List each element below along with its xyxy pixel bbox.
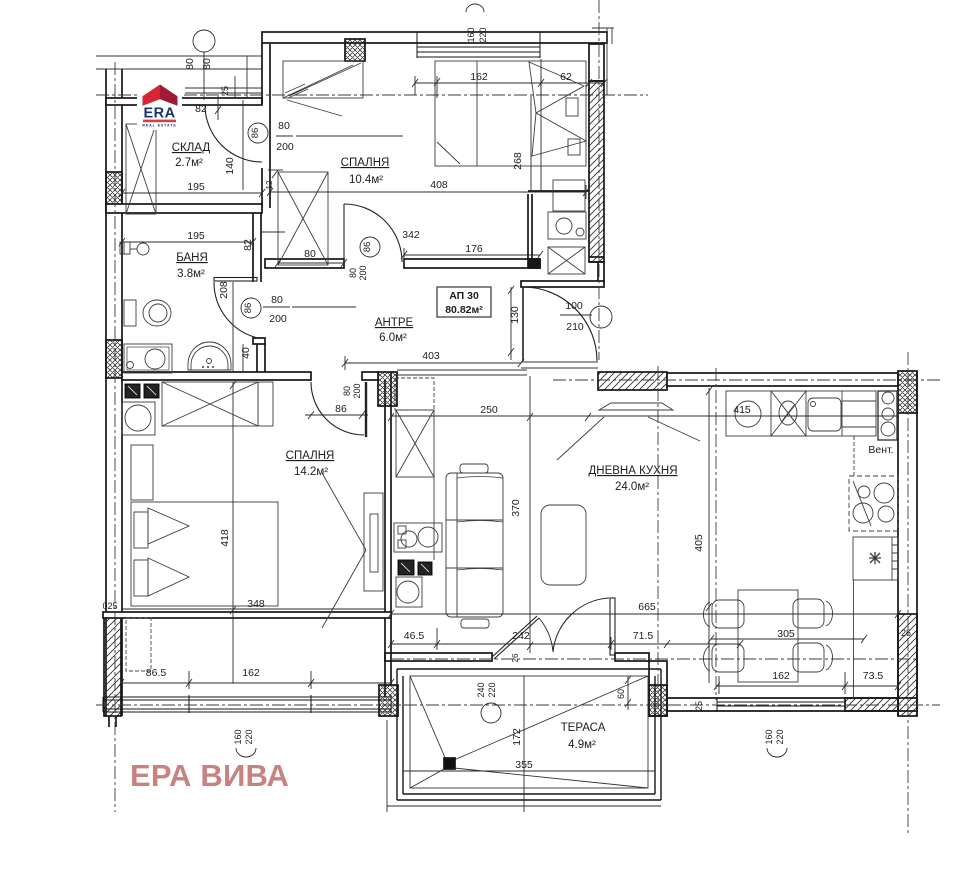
svg-text:25: 25 <box>694 701 704 711</box>
svg-text:АП 30: АП 30 <box>449 290 479 302</box>
svg-text:100: 100 <box>565 300 583 312</box>
svg-text:25: 25 <box>220 86 230 96</box>
svg-text:71.5: 71.5 <box>633 630 654 642</box>
svg-text:160: 160 <box>466 27 476 42</box>
svg-text:14.2м²: 14.2м² <box>294 466 328 478</box>
svg-text:195: 195 <box>187 230 205 242</box>
svg-text:268: 268 <box>512 152 524 170</box>
svg-text:403: 403 <box>422 350 440 362</box>
svg-text:2.7м²: 2.7м² <box>175 157 203 169</box>
svg-text:ЕРА ВИВА: ЕРА ВИВА <box>130 758 289 793</box>
svg-text:82: 82 <box>195 103 207 115</box>
svg-text:405: 405 <box>693 534 705 552</box>
svg-text:80: 80 <box>348 268 358 278</box>
svg-text:СКЛАД: СКЛАД <box>172 142 211 154</box>
svg-text:210: 210 <box>566 321 584 333</box>
svg-text:418: 418 <box>219 529 231 547</box>
svg-text:86: 86 <box>335 403 347 415</box>
svg-text:ERA: ERA <box>143 106 175 122</box>
svg-text:220: 220 <box>478 27 488 42</box>
svg-text:6.0м²: 6.0м² <box>379 332 407 344</box>
svg-text:86.5: 86.5 <box>146 667 167 679</box>
svg-text:025: 025 <box>102 601 117 611</box>
svg-text:355: 355 <box>515 759 533 771</box>
svg-text:БАНЯ: БАНЯ <box>176 252 208 264</box>
svg-text:348: 348 <box>247 598 265 610</box>
svg-text:176: 176 <box>465 243 483 255</box>
svg-text:73.5: 73.5 <box>863 670 884 682</box>
svg-text:86: 86 <box>250 128 261 139</box>
svg-text:220: 220 <box>775 729 785 744</box>
svg-text:195: 195 <box>187 181 205 193</box>
svg-text:3.8м²: 3.8м² <box>177 268 205 280</box>
svg-text:172: 172 <box>511 728 523 746</box>
svg-text:200: 200 <box>269 313 287 325</box>
svg-text:62: 62 <box>560 71 572 83</box>
svg-text:665: 665 <box>638 601 656 613</box>
svg-text:140: 140 <box>224 157 236 175</box>
svg-text:80: 80 <box>201 58 213 70</box>
svg-text:342: 342 <box>402 229 420 241</box>
svg-text:305: 305 <box>777 628 795 640</box>
svg-text:ДНЕВНА КУХНЯ: ДНЕВНА КУХНЯ <box>588 465 677 477</box>
svg-text:80: 80 <box>271 294 283 306</box>
svg-text:208: 208 <box>218 281 230 299</box>
svg-text:10.4м²: 10.4м² <box>349 174 383 186</box>
svg-text:240: 240 <box>476 682 486 697</box>
svg-text:86: 86 <box>362 242 373 253</box>
svg-text:80: 80 <box>304 248 316 260</box>
svg-text:82: 82 <box>242 239 254 251</box>
svg-text:408: 408 <box>430 179 448 191</box>
svg-text:Вент.: Вент. <box>868 444 893 456</box>
svg-text:4.9м²: 4.9м² <box>568 739 596 751</box>
svg-text:200: 200 <box>276 141 294 153</box>
svg-text:24.0м²: 24.0м² <box>615 481 649 493</box>
svg-text:200: 200 <box>352 383 362 398</box>
svg-text:80: 80 <box>278 120 290 132</box>
svg-text:СПАЛНЯ: СПАЛНЯ <box>341 157 390 169</box>
svg-text:12: 12 <box>265 180 274 189</box>
svg-text:220: 220 <box>487 682 497 697</box>
svg-text:ТЕРАСА: ТЕРАСА <box>561 722 606 734</box>
svg-text:415: 415 <box>733 404 751 416</box>
svg-text:86: 86 <box>243 303 254 314</box>
svg-text:80: 80 <box>342 386 352 396</box>
svg-text:162: 162 <box>242 667 260 679</box>
svg-text:40: 40 <box>240 347 252 359</box>
svg-text:26: 26 <box>511 653 520 662</box>
svg-text:25: 25 <box>901 628 911 638</box>
svg-text:160: 160 <box>233 729 243 744</box>
svg-text:370: 370 <box>510 499 522 517</box>
svg-text:242: 242 <box>512 630 530 642</box>
svg-text:46.5: 46.5 <box>404 630 425 642</box>
svg-text:162: 162 <box>470 71 488 83</box>
svg-text:АНТРЕ: АНТРЕ <box>375 317 414 329</box>
svg-text:130: 130 <box>509 306 521 324</box>
svg-text:160: 160 <box>764 729 774 744</box>
svg-text:250: 250 <box>480 404 498 416</box>
svg-text:80: 80 <box>184 58 196 70</box>
svg-text:60: 60 <box>616 689 626 699</box>
svg-text:200: 200 <box>358 265 368 280</box>
svg-text:REAL ESTATE: REAL ESTATE <box>142 124 176 128</box>
svg-text:162: 162 <box>772 670 790 682</box>
svg-text:80.82м²: 80.82м² <box>445 304 483 316</box>
svg-text:220: 220 <box>244 729 254 744</box>
svg-text:СПАЛНЯ: СПАЛНЯ <box>286 450 335 462</box>
